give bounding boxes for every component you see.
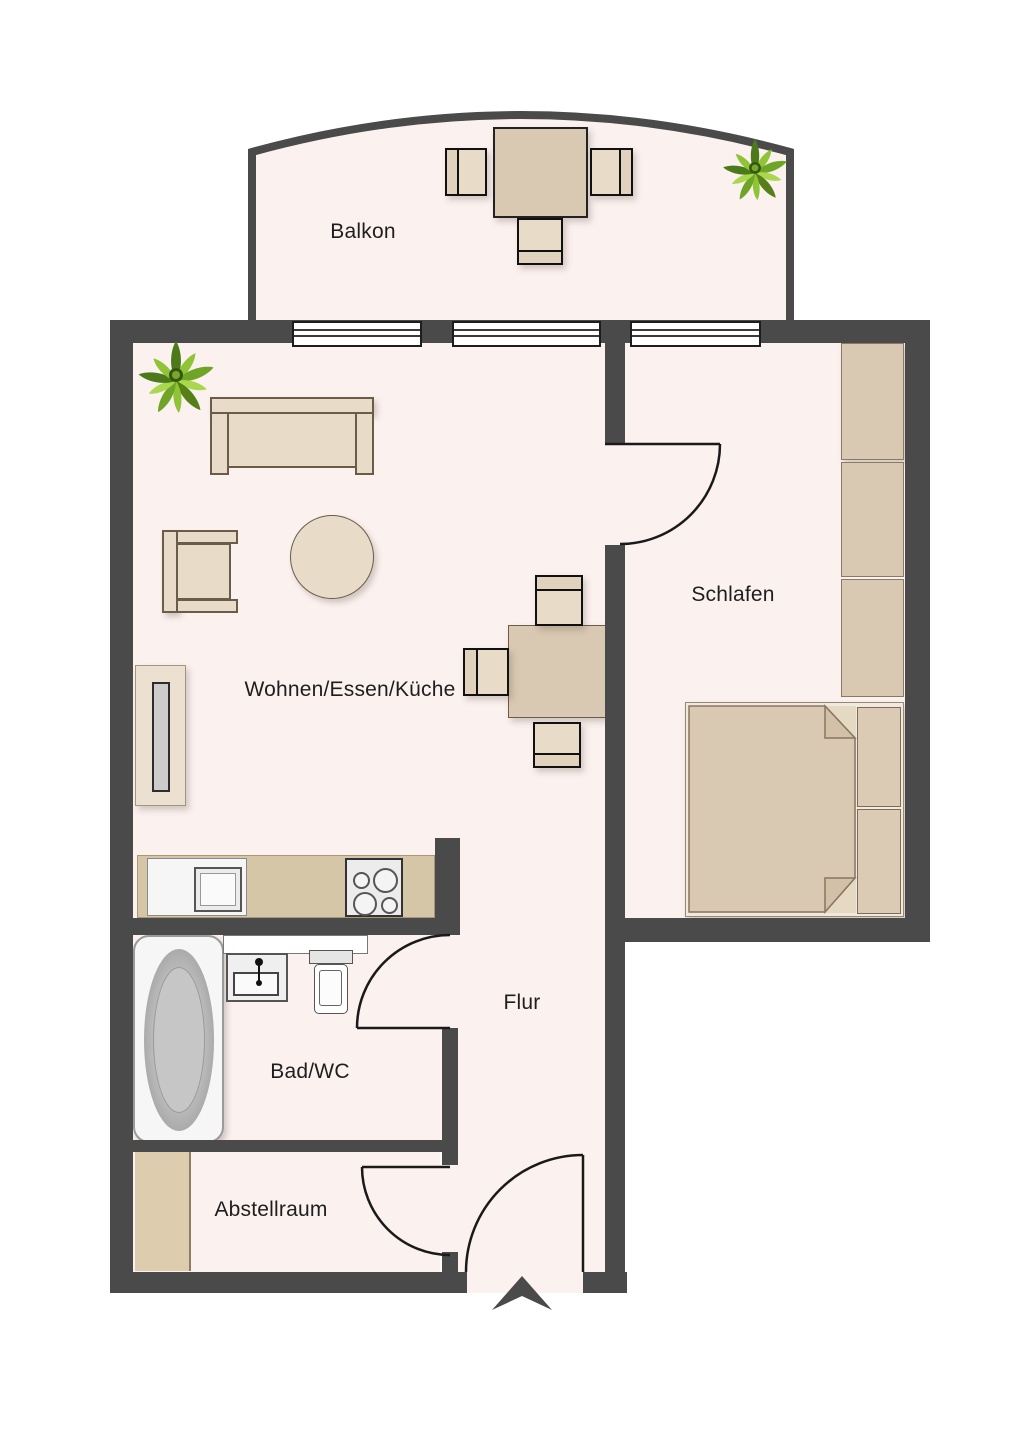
bathtub bbox=[133, 935, 224, 1143]
bed-sheet bbox=[689, 706, 856, 913]
dining-table bbox=[508, 625, 606, 718]
bed-pillow-top bbox=[857, 707, 901, 807]
sideboard bbox=[135, 665, 186, 806]
wall-divider-lower bbox=[605, 545, 625, 1293]
room-label-bad-wc: Bad/WC bbox=[270, 1060, 349, 1084]
storage-shelf bbox=[135, 1150, 191, 1271]
wardrobe-segment-3 bbox=[841, 579, 904, 697]
outdoor-chair-left bbox=[445, 148, 487, 196]
wall-bath-right bbox=[442, 1028, 458, 1152]
outdoor-chair-right bbox=[590, 148, 633, 196]
burner-large-2 bbox=[353, 892, 377, 916]
sofa-armrest-right bbox=[355, 412, 374, 475]
stove bbox=[345, 858, 403, 917]
outdoor-table bbox=[493, 127, 588, 218]
floor-hallway bbox=[458, 918, 605, 1272]
wall-right bbox=[905, 320, 930, 942]
wall-storage-right-top bbox=[442, 1152, 458, 1165]
room-label-abstellraum: Abstellraum bbox=[214, 1198, 327, 1222]
double-bed-frame bbox=[685, 702, 904, 917]
bed-pillow-bottom bbox=[857, 809, 901, 914]
floor-bath-door-opening bbox=[443, 935, 458, 1028]
room-label-schlafen: Schlafen bbox=[691, 583, 774, 607]
wall-bedroom-bottom bbox=[605, 918, 930, 942]
wall-bottom-right-stub bbox=[583, 1272, 627, 1293]
bathtub-basin bbox=[144, 949, 214, 1131]
toilet-bowl bbox=[314, 964, 348, 1014]
armchair-armrest-bottom bbox=[176, 599, 238, 613]
burner-small-1 bbox=[353, 872, 370, 889]
floorplan-canvas: Balkon Wohnen/Essen/Küche Schlafen Flur … bbox=[0, 0, 1018, 1440]
room-label-wohnen: Wohnen/Essen/Küche bbox=[244, 678, 455, 702]
room-label-flur: Flur bbox=[504, 991, 541, 1015]
wall-bottom bbox=[110, 1272, 467, 1293]
wardrobe-segment-2 bbox=[841, 462, 904, 577]
wall-storage-right-bottom bbox=[442, 1252, 458, 1272]
dining-chair-top bbox=[535, 575, 583, 626]
floor-entry-threshold bbox=[467, 1272, 583, 1293]
floor-bedroom-door-opening bbox=[605, 443, 625, 545]
dining-chair-left bbox=[463, 648, 509, 696]
window-2 bbox=[452, 321, 601, 347]
burner-small-2 bbox=[381, 897, 398, 914]
room-label-balkon: Balkon bbox=[330, 220, 395, 244]
wall-kitchen-bath bbox=[110, 918, 460, 935]
sofa-seat bbox=[227, 412, 357, 468]
wall-bath-storage bbox=[110, 1140, 457, 1152]
wall-kitchen-stub bbox=[435, 838, 460, 935]
washbasin bbox=[226, 953, 288, 1002]
wardrobe-segment-1 bbox=[841, 343, 904, 460]
window-1 bbox=[292, 321, 422, 347]
floor-storage-door-opening bbox=[440, 1165, 458, 1252]
armchair-seat bbox=[176, 543, 231, 600]
coffee-table bbox=[290, 515, 374, 599]
window-3 bbox=[630, 321, 761, 347]
armchair-armrest-top bbox=[176, 530, 238, 544]
kitchen-sink-unit bbox=[147, 858, 247, 916]
outdoor-chair-bottom bbox=[517, 218, 563, 265]
wall-divider-upper bbox=[605, 343, 625, 443]
toilet-tank bbox=[309, 950, 353, 964]
burner-large-1 bbox=[373, 868, 398, 893]
dining-chair-bottom bbox=[533, 722, 581, 768]
